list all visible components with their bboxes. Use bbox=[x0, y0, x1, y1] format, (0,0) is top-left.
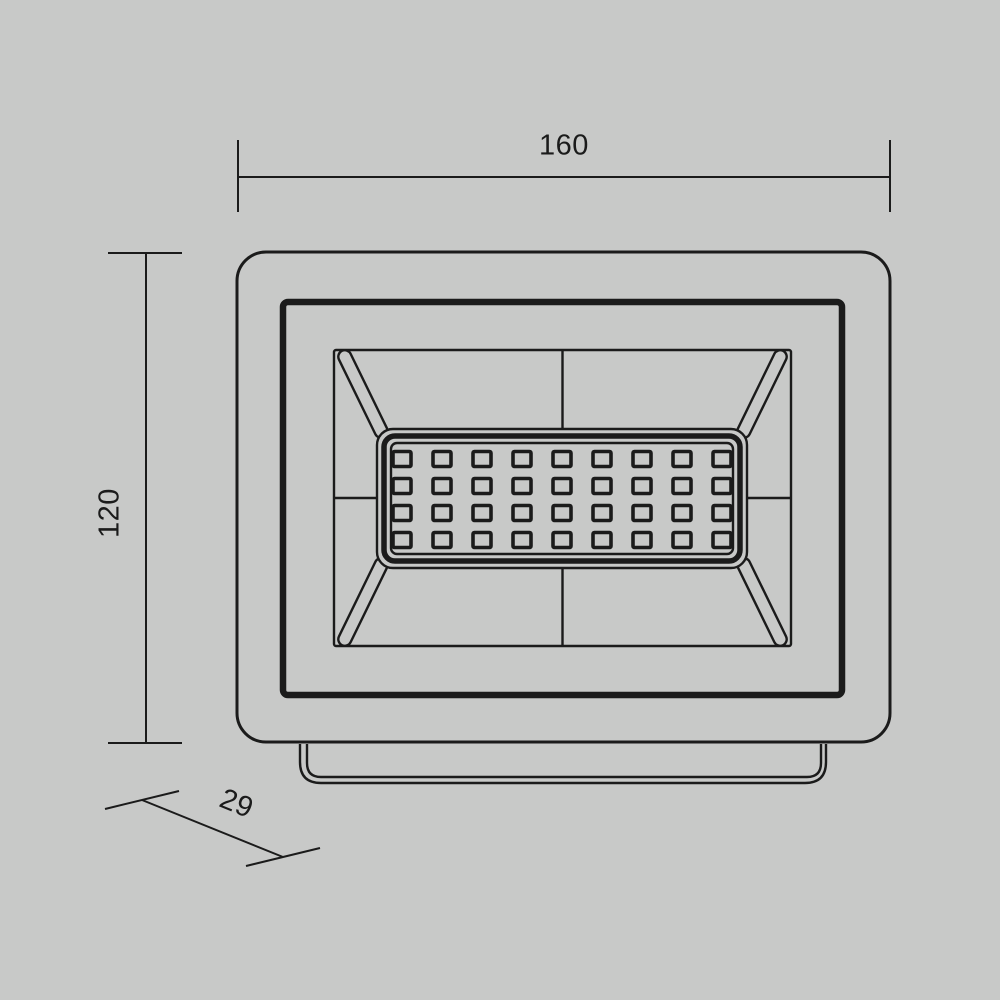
drawing-stage: 160 120 29 bbox=[0, 0, 1000, 1000]
height-dimension-label: 120 bbox=[94, 488, 126, 538]
technical-drawing-canvas: 160 120 29 bbox=[0, 0, 1000, 1000]
width-dimension-label: 160 bbox=[539, 130, 589, 162]
led-panel bbox=[377, 429, 747, 568]
